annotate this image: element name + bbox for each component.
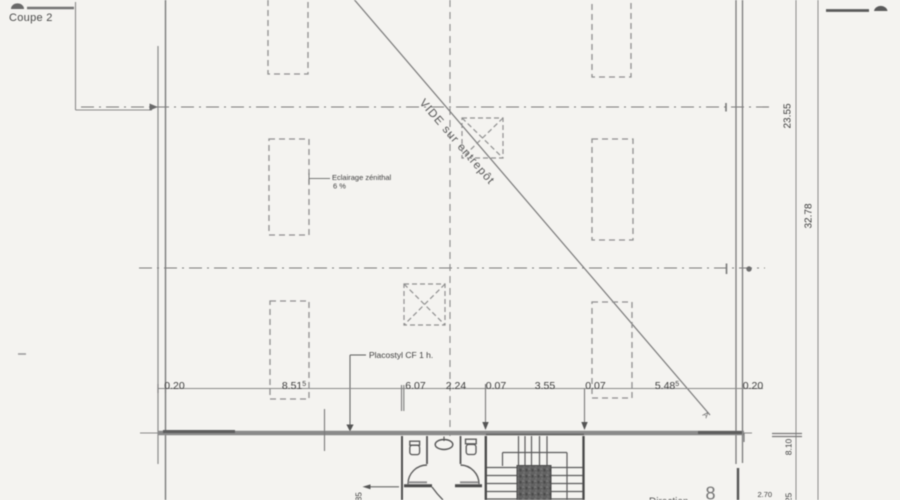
svg-text:8.10: 8.10	[784, 438, 794, 455]
svg-text:6 %: 6 %	[333, 182, 346, 191]
svg-text:0.20: 0.20	[743, 380, 764, 392]
svg-text:0.07: 0.07	[486, 380, 507, 392]
svg-text:Coupe 2: Coupe 2	[9, 12, 53, 24]
svg-text:Placostyl CF 1 h.: Placostyl CF 1 h.	[369, 350, 433, 360]
svg-text:23.55: 23.55	[783, 103, 794, 128]
svg-text:3.55: 3.55	[535, 380, 556, 392]
svg-text:32.78: 32.78	[804, 203, 815, 228]
svg-text:0.20: 0.20	[164, 380, 185, 392]
svg-text:8: 8	[706, 484, 716, 500]
svg-text:2.24: 2.24	[446, 380, 467, 392]
svg-text:2.85: 2.85	[355, 492, 364, 500]
svg-text:6.07: 6.07	[405, 380, 426, 392]
svg-text:0.07: 0.07	[585, 380, 606, 392]
svg-text:Direction: Direction	[649, 497, 688, 500]
svg-text:2.25: 2.25	[784, 492, 794, 500]
svg-text:2.70: 2.70	[758, 490, 773, 499]
